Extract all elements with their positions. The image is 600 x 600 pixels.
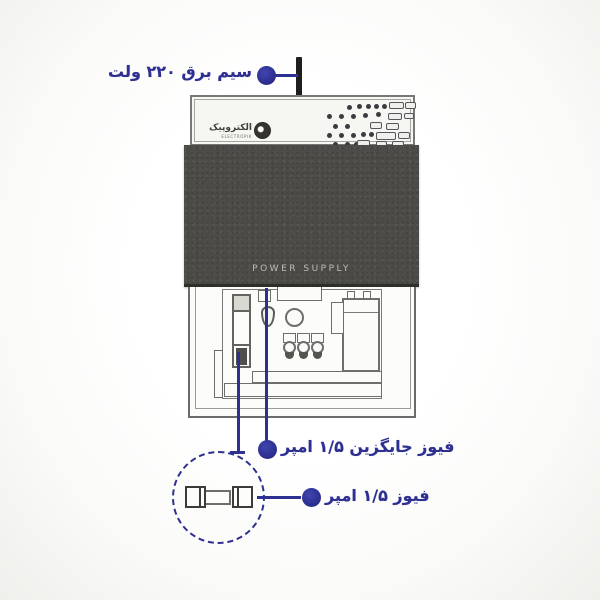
terminal-pattern	[192, 97, 413, 144]
terminal-dot	[369, 132, 374, 137]
terminal-slot	[376, 132, 396, 140]
terminal-slot	[398, 132, 410, 139]
power-cord-bar	[296, 57, 302, 97]
device-top-panel: الکتروپیک ELECTROPIK	[190, 95, 415, 146]
label-fuse: فیوز ۱/۵ امپر	[325, 486, 430, 505]
terminal-dot	[366, 104, 371, 109]
terminal-dot	[339, 133, 344, 138]
fuse-cap-right-line	[237, 487, 239, 507]
leader-line-fuse	[237, 352, 240, 452]
terminal-dot	[374, 104, 379, 109]
leader-line-power-wire	[274, 74, 298, 77]
leader-line-spare-fuse	[265, 288, 268, 441]
callout-dot-spare-fuse	[258, 440, 277, 459]
terminal-slot	[386, 123, 399, 130]
terminal-dot	[376, 112, 381, 117]
fuse-cap-right	[232, 486, 253, 508]
leader-line-fuse-label	[257, 496, 301, 499]
bottom-rail-upper	[252, 371, 382, 383]
device-cover: POWER SUPPLY	[184, 145, 419, 287]
terminal-dot	[382, 104, 387, 109]
buzzer-circle	[285, 308, 304, 327]
terminal-slot	[389, 102, 404, 109]
device-internals	[188, 287, 416, 418]
terminal-slot	[404, 113, 414, 119]
callout-dot-fuse	[302, 488, 321, 507]
terminal-dot	[327, 133, 332, 138]
terminal-slot	[388, 113, 402, 120]
terminal-slot	[405, 102, 416, 109]
fuse-holder-divider	[234, 344, 249, 346]
fuse-glass-body	[203, 490, 231, 505]
terminal-dot	[363, 113, 368, 118]
terminal-dot	[347, 105, 352, 110]
label-power-wire: سیم برق ۲۲۰ ولت	[108, 62, 252, 81]
fuse-cap-left	[185, 486, 206, 508]
fuse-holder-cap	[234, 296, 249, 312]
terminal-dot	[327, 114, 332, 119]
terminal-dot	[351, 133, 356, 138]
bottom-rail-lower	[224, 383, 382, 397]
terminal-dot	[357, 104, 362, 109]
fuse-holder	[232, 294, 251, 368]
top-bracket	[277, 287, 322, 301]
terminal-dot	[339, 114, 344, 119]
terminal-dot	[333, 124, 338, 129]
label-spare-fuse: فیوز جایگزین ۱/۵ امپر	[281, 437, 454, 456]
fuse-cap-left-line	[199, 487, 201, 507]
terminal-dot	[361, 132, 366, 137]
terminal-strip	[283, 333, 325, 361]
side-channel	[214, 350, 223, 398]
cover-title: POWER SUPPLY	[184, 264, 419, 274]
terminal-dot	[351, 114, 356, 119]
diagram-canvas: سیم برق ۲۲۰ ولت الکتروپیک ELECTROPIK POW…	[0, 0, 600, 600]
terminal-dot	[345, 124, 350, 129]
terminal-slot	[370, 122, 382, 129]
